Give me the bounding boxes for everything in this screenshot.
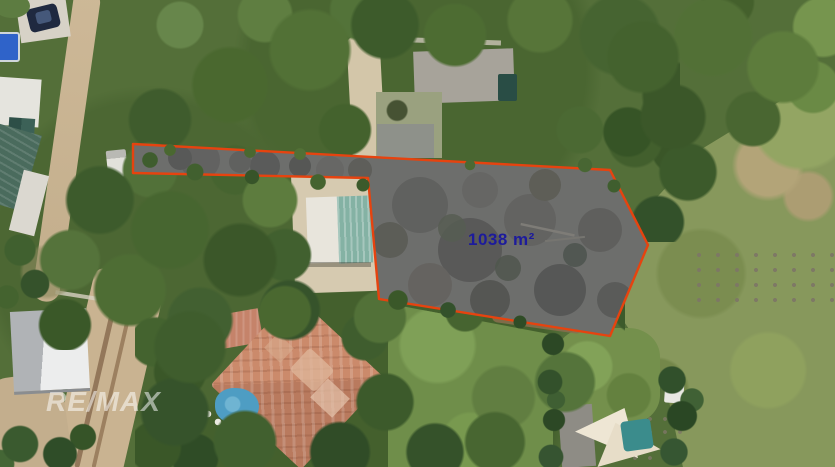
palm-trees	[0, 412, 103, 467]
field-rocks	[690, 248, 835, 310]
tree-canopy-top-right	[598, 0, 835, 242]
aerial-photo: RE/MAX 1038 m²	[0, 0, 835, 467]
tree-cluster	[0, 222, 65, 312]
remax-watermark: RE/MAX	[46, 388, 161, 416]
plunge-pool	[620, 418, 654, 452]
hedge-row	[536, 322, 570, 467]
lot-area-label: 1038 m²	[468, 231, 535, 248]
hedge-row	[650, 358, 706, 467]
swimming-pool-small	[0, 32, 20, 62]
pool-house-roof-teal	[337, 195, 373, 263]
